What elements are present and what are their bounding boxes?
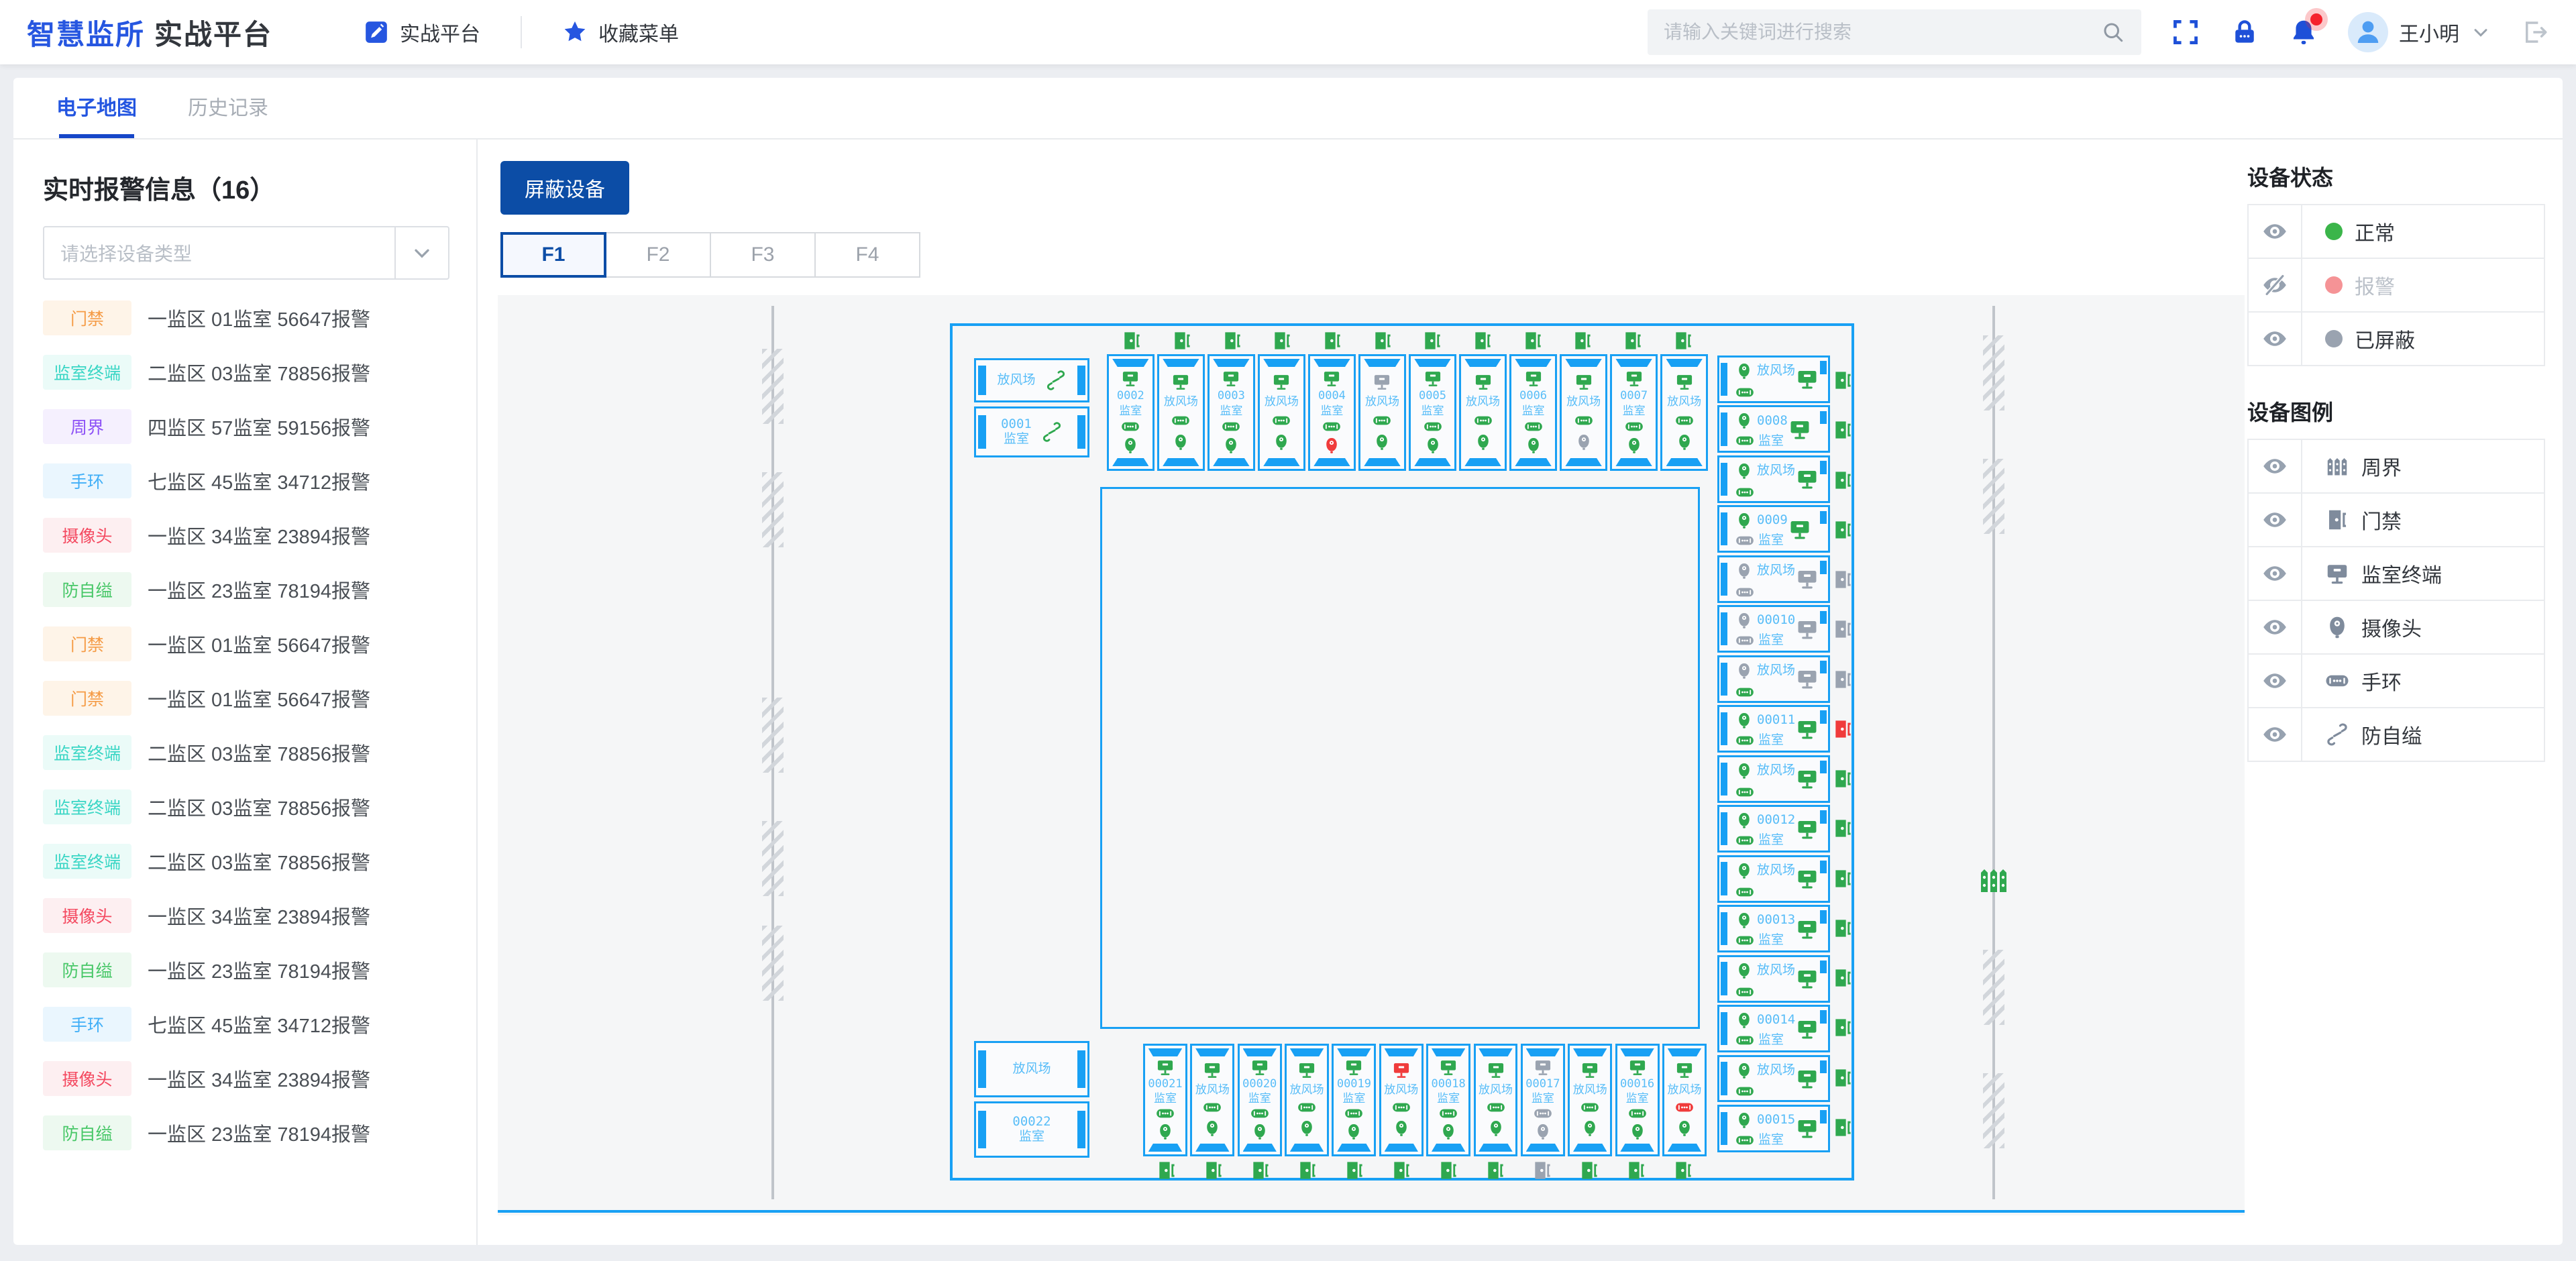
alarm-item[interactable]: 摄像头一监区 34监室 23894报警: [43, 508, 449, 562]
door-slot: [1237, 1159, 1284, 1182]
floor-tab-f4[interactable]: F4: [814, 232, 920, 278]
room-cell[interactable]: 00015监室: [1717, 1105, 1830, 1152]
band-icon[interactable]: [1735, 686, 1754, 698]
cell-row-top: 00010: [1735, 610, 1795, 631]
camera-icon[interactable]: [1735, 610, 1753, 631]
floor-tab-f2[interactable]: F2: [605, 232, 711, 278]
menu-item-favorites[interactable]: 收藏菜单: [562, 17, 679, 47]
monitor-icon[interactable]: [1788, 418, 1812, 441]
yard-cell[interactable]: 放风场: [974, 1041, 1089, 1097]
yard-cell[interactable]: 放风场: [1568, 1044, 1612, 1156]
cell-content: 0009监室: [1725, 510, 1788, 548]
room-cell[interactable]: 0004监室: [1308, 354, 1356, 471]
camera-icon[interactable]: [1474, 431, 1492, 453]
yard-cell[interactable]: 放风场: [1459, 354, 1507, 471]
door-icon[interactable]: [1832, 370, 1854, 391]
band-icon[interactable]: [1534, 1107, 1552, 1119]
rope-icon[interactable]: [1045, 370, 1067, 391]
floor-tab-f3[interactable]: F3: [710, 232, 816, 278]
yard-cell[interactable]: 放风场: [1717, 755, 1830, 803]
monitor-icon[interactable]: [1250, 1058, 1270, 1077]
door-slot: [1831, 854, 1854, 903]
door-icon[interactable]: [1485, 1160, 1506, 1181]
camera-icon[interactable]: [1676, 431, 1693, 453]
door-icon[interactable]: [1297, 1160, 1318, 1181]
monitor-icon[interactable]: [1795, 468, 1819, 490]
alarm-item[interactable]: 门禁一监区 01监室 56647报警: [43, 616, 449, 671]
door-icon[interactable]: [1832, 669, 1854, 690]
band-icon[interactable]: [1625, 421, 1644, 433]
alarm-sidebar: 实时报警信息（16） 请选择设备类型 门禁一监区 01监室 56647报警监室终…: [13, 140, 478, 1245]
alarm-item[interactable]: 防自缢一监区 23监室 78194报警: [43, 942, 449, 997]
cell-top-bar: [1573, 1048, 1607, 1056]
alarm-text: 一监区 23监室 78194报警: [148, 1119, 370, 1147]
room-cell[interactable]: 00010监室: [1717, 605, 1830, 653]
monitor-icon[interactable]: [1795, 818, 1819, 840]
camera-icon[interactable]: [1575, 431, 1593, 453]
logo-secondary: 实战平台: [154, 12, 272, 53]
yard-cell[interactable]: 放风场: [1662, 1044, 1707, 1156]
monitor-icon[interactable]: [1486, 1060, 1506, 1079]
band-icon[interactable]: [1574, 415, 1593, 427]
door-icon[interactable]: [1472, 330, 1493, 351]
door-icon[interactable]: [1156, 1160, 1177, 1181]
rope-icon[interactable]: [1041, 421, 1063, 443]
monitor-icon[interactable]: [1788, 518, 1812, 541]
band-icon[interactable]: [1487, 1101, 1505, 1113]
camera-icon[interactable]: [1487, 1117, 1505, 1139]
band-icon[interactable]: [1121, 421, 1140, 433]
device-type-select[interactable]: 请选择设备类型: [43, 226, 449, 280]
room-cell[interactable]: 00016监室: [1615, 1044, 1660, 1156]
cell-label: 00016: [1620, 1078, 1654, 1091]
tab-electronic-map[interactable]: 电子地图: [56, 91, 137, 138]
eye-toggle[interactable]: [2249, 205, 2302, 258]
monitor-icon[interactable]: [1322, 369, 1342, 388]
monitor-icon[interactable]: [1574, 372, 1594, 391]
cell-row-top: 00013: [1735, 910, 1795, 931]
door-icon[interactable]: [1832, 967, 1854, 989]
top-cell-row: 0002监室放风场0003监室放风场0004监室放风场0005监室放风场0006…: [1107, 354, 1708, 471]
status-main: 正常: [2302, 205, 2544, 258]
monitor-icon[interactable]: [1533, 1058, 1553, 1077]
door-icon[interactable]: [1121, 330, 1142, 351]
band-icon[interactable]: [1297, 1101, 1316, 1113]
door-icon[interactable]: [1832, 918, 1854, 939]
room-cell[interactable]: 00018监室: [1426, 1044, 1470, 1156]
door-icon[interactable]: [1625, 1160, 1647, 1181]
room-cell[interactable]: 00020监室: [1238, 1044, 1282, 1156]
band-icon[interactable]: [1344, 1107, 1363, 1119]
door-icon[interactable]: [1832, 1067, 1854, 1089]
room-cell[interactable]: 0001监室: [974, 406, 1089, 457]
camera-icon[interactable]: [1393, 1117, 1410, 1139]
room-cell[interactable]: 0005监室: [1409, 354, 1456, 471]
door-icon[interactable]: [1578, 1160, 1600, 1181]
camera-icon[interactable]: [1676, 1117, 1693, 1139]
alarm-item[interactable]: 监室终端二监区 03监室 78856报警: [43, 779, 449, 834]
door-icon[interactable]: [1622, 330, 1644, 351]
cell-top-bar: [1515, 359, 1551, 367]
camera-icon[interactable]: [1157, 1121, 1174, 1142]
camera-icon[interactable]: [1735, 960, 1753, 981]
door-icon[interactable]: [1322, 330, 1343, 351]
eye-toggle[interactable]: [2249, 440, 2302, 492]
room-cell[interactable]: 0007监室: [1610, 354, 1658, 471]
alarm-item[interactable]: 手环七监区 45监室 34712报警: [43, 997, 449, 1051]
eye-toggle[interactable]: [2249, 655, 2302, 707]
camera-icon[interactable]: [1298, 1117, 1316, 1139]
cell-bottom-bar: [1213, 458, 1249, 466]
band-icon[interactable]: [1735, 586, 1754, 598]
user-menu[interactable]: 王小明: [2348, 12, 2491, 52]
monitor-icon[interactable]: [1221, 369, 1241, 388]
monitor-icon[interactable]: [1523, 369, 1544, 388]
edit-icon: [364, 19, 389, 45]
camera-icon[interactable]: [1735, 560, 1753, 582]
alarm-item[interactable]: 门禁一监区 01监室 56647报警: [43, 290, 449, 345]
alarm-item[interactable]: 监室终端二监区 03监室 78856报警: [43, 725, 449, 779]
band-icon[interactable]: [1222, 421, 1240, 433]
door-icon[interactable]: [1832, 868, 1854, 889]
star-icon: [562, 19, 588, 45]
door-icon[interactable]: [1832, 718, 1854, 740]
menu-item-platform[interactable]: 实战平台: [364, 17, 480, 47]
cell-content: 00013监室: [1725, 910, 1795, 948]
floor-tab-f1[interactable]: F1: [500, 232, 606, 278]
room-cell[interactable]: 00014监室: [1717, 1005, 1830, 1052]
alarm-item[interactable]: 监室终端二监区 03监室 78856报警: [43, 345, 449, 399]
monitor-icon[interactable]: [1674, 1060, 1695, 1079]
band-icon[interactable]: [1735, 486, 1754, 498]
camera-icon[interactable]: [1735, 1109, 1753, 1131]
door-icon[interactable]: [1672, 1160, 1694, 1181]
device-status-box: 正常报警已屏蔽: [2247, 204, 2545, 366]
monitor-icon[interactable]: [1795, 867, 1819, 890]
camera-icon[interactable]: [1735, 460, 1753, 482]
monitor-icon[interactable]: [1795, 767, 1819, 790]
lock-icon[interactable]: [2230, 17, 2259, 47]
band-icon[interactable]: [1735, 1134, 1754, 1146]
door-icon[interactable]: [1832, 470, 1854, 491]
yard-cell[interactable]: 放风场: [1717, 955, 1830, 1003]
monitor-icon[interactable]: [1423, 369, 1443, 388]
status-main: 报警: [2302, 259, 2544, 311]
cell-bottom-bar: [1195, 1144, 1229, 1152]
door-icon[interactable]: [1391, 1160, 1412, 1181]
camera-icon[interactable]: [1525, 435, 1542, 456]
door-icon[interactable]: [1344, 1160, 1365, 1181]
camera-icon[interactable]: [1172, 431, 1189, 453]
room-cell[interactable]: 0008监室: [1717, 405, 1830, 453]
room-cell[interactable]: 00022监室: [974, 1101, 1089, 1158]
yard-cell[interactable]: 放风场: [1717, 655, 1830, 703]
door-slot: [1831, 405, 1854, 455]
eye-toggle[interactable]: [2249, 494, 2302, 546]
cell-label: 监室: [1758, 733, 1784, 748]
yard-cell[interactable]: 放风场: [1560, 354, 1607, 471]
door-icon[interactable]: [1532, 1160, 1553, 1181]
yard-cell[interactable]: 放风场: [1190, 1044, 1234, 1156]
alarm-item[interactable]: 监室终端二监区 03监室 78856报警: [43, 834, 449, 888]
bell-button[interactable]: [2289, 17, 2318, 47]
band-icon[interactable]: [1735, 734, 1754, 747]
band-icon[interactable]: [1735, 986, 1754, 998]
tab-history[interactable]: 历史记录: [188, 91, 268, 138]
alarm-type-tag: 监室终端: [43, 789, 131, 824]
monitor-icon[interactable]: [1795, 667, 1819, 690]
cell-row-bottom: 监室: [1735, 633, 1795, 648]
cell-row-bottom: [1735, 586, 1795, 598]
band-icon[interactable]: [1373, 415, 1391, 427]
door-icon[interactable]: [1672, 330, 1694, 351]
band-icon[interactable]: [1735, 635, 1754, 647]
yard-cell[interactable]: 放风场: [1379, 1044, 1424, 1156]
door-icon[interactable]: [1832, 1017, 1854, 1038]
camera-icon[interactable]: [1440, 1121, 1457, 1142]
cell-content: 00014监室: [1725, 1009, 1795, 1048]
room-cell[interactable]: 00012监室: [1717, 805, 1830, 853]
monitor-icon[interactable]: [1674, 372, 1695, 391]
camera-icon[interactable]: [1273, 431, 1290, 453]
door-icon[interactable]: [1832, 569, 1854, 590]
cell-row-bottom: [1735, 386, 1795, 398]
camera-icon[interactable]: [1251, 1121, 1269, 1142]
band-icon[interactable]: [1392, 1101, 1411, 1113]
camera-icon[interactable]: [1122, 435, 1139, 456]
door-slot: [1660, 1159, 1707, 1182]
room-cell[interactable]: 0009监室: [1717, 505, 1830, 553]
room-cell[interactable]: 00019监室: [1332, 1044, 1376, 1156]
alarm-text: 七监区 45监室 34712报警: [148, 1010, 370, 1038]
door-icon[interactable]: [1203, 1160, 1224, 1181]
cell-bottom-bar: [1479, 1144, 1512, 1152]
cell-label: 放风场: [1667, 396, 1701, 409]
monitor-icon[interactable]: [1391, 1060, 1411, 1079]
floor-map-canvas[interactable]: 0002监室放风场0003监室放风场0004监室放风场0005监室放风场0006…: [498, 295, 2245, 1215]
door-icon[interactable]: [1832, 768, 1854, 789]
camera-icon[interactable]: [1323, 435, 1340, 456]
monitor-icon[interactable]: [1627, 1058, 1648, 1077]
band-icon[interactable]: [1524, 421, 1543, 433]
band-icon[interactable]: [1735, 1085, 1754, 1097]
camera-icon[interactable]: [1203, 1117, 1221, 1139]
band-icon[interactable]: [1735, 435, 1754, 447]
band-icon[interactable]: [1735, 786, 1754, 798]
door-slot: [1831, 604, 1854, 654]
monitor-icon[interactable]: [1795, 567, 1819, 590]
band-icon[interactable]: [1580, 1101, 1599, 1113]
alarm-item[interactable]: 手环七监区 45监室 34712报警: [43, 453, 449, 508]
room-cell[interactable]: 00011监室: [1717, 705, 1830, 753]
camera-icon[interactable]: [1345, 1121, 1362, 1142]
alarm-item[interactable]: 防自缢一监区 23监室 78194报警: [43, 1105, 449, 1160]
camera-icon[interactable]: [1735, 1009, 1753, 1031]
cell-label: 放风场: [1667, 1084, 1701, 1097]
door-icon[interactable]: [1832, 419, 1854, 441]
band-icon[interactable]: [1156, 1107, 1175, 1119]
monitor-icon[interactable]: [1202, 1060, 1222, 1079]
band-icon[interactable]: [1735, 535, 1754, 547]
band-icon[interactable]: [1735, 834, 1754, 846]
yard-cell[interactable]: 放风场: [1717, 1055, 1830, 1103]
monitor-icon[interactable]: [1624, 369, 1644, 388]
fence-icon[interactable]: [1978, 864, 2010, 896]
room-cell[interactable]: 00013监室: [1717, 905, 1830, 952]
yard-cell[interactable]: 放风场: [1660, 354, 1708, 471]
shield-device-button[interactable]: 屏蔽设备: [500, 161, 629, 215]
band-icon[interactable]: [1675, 1101, 1694, 1113]
monitor-icon[interactable]: [1580, 1060, 1600, 1079]
camera-icon[interactable]: [1735, 910, 1753, 931]
camera-icon[interactable]: [1735, 510, 1753, 531]
search-icon[interactable]: [2101, 20, 2125, 44]
search-input[interactable]: [1664, 21, 2101, 43]
room-cell[interactable]: 00021监室: [1143, 1044, 1187, 1156]
monitor-icon[interactable]: [1795, 718, 1819, 741]
band-icon[interactable]: [1424, 421, 1442, 433]
monitor-icon[interactable]: [1795, 1018, 1819, 1040]
monitor-icon[interactable]: [1795, 918, 1819, 940]
camera-icon[interactable]: [1534, 1121, 1552, 1142]
band-icon[interactable]: [1272, 415, 1291, 427]
camera-icon[interactable]: [1735, 360, 1753, 382]
camera-icon[interactable]: [1625, 435, 1643, 456]
alarm-type-tag: 门禁: [43, 626, 131, 661]
band-icon[interactable]: [1322, 421, 1341, 433]
monitor-icon[interactable]: [1155, 1058, 1175, 1077]
band-icon[interactable]: [1735, 886, 1754, 898]
eye-toggle[interactable]: [2249, 708, 2302, 761]
cell-label: 00014: [1757, 1013, 1795, 1028]
monitor-icon[interactable]: [1372, 372, 1392, 391]
door-slot: [1284, 1159, 1331, 1182]
top-menu: 实战平台 收藏菜单: [364, 16, 679, 48]
band-icon[interactable]: [1735, 386, 1754, 398]
camera-icon[interactable]: [1735, 760, 1753, 781]
band-icon[interactable]: [1735, 1034, 1754, 1046]
cell-label: 放风场: [1365, 396, 1399, 409]
yard-cell[interactable]: 放风场: [1474, 1044, 1518, 1156]
monitor-icon[interactable]: [1171, 372, 1191, 391]
yard-cell[interactable]: 放风场: [1717, 855, 1830, 903]
door-icon[interactable]: [1832, 818, 1854, 839]
eye-toggle[interactable]: [2249, 547, 2302, 600]
door-icon[interactable]: [1372, 330, 1393, 351]
room-cell[interactable]: 0002监室: [1107, 354, 1155, 471]
monitor-icon[interactable]: [1271, 372, 1291, 391]
monitor-icon[interactable]: [1795, 967, 1819, 990]
camera-icon[interactable]: [1735, 660, 1753, 681]
yard-cell[interactable]: 放风场: [1285, 1044, 1329, 1156]
status-row: 正常: [2249, 205, 2544, 259]
monitor-icon[interactable]: [1120, 369, 1140, 388]
band-icon[interactable]: [1474, 415, 1493, 427]
monitor-icon[interactable]: [1297, 1060, 1317, 1079]
yard-cell[interactable]: 放风场: [1717, 555, 1830, 603]
monitor-icon[interactable]: [1344, 1058, 1364, 1077]
room-cell[interactable]: 0003监室: [1207, 354, 1255, 471]
room-cell[interactable]: 0006监室: [1509, 354, 1557, 471]
alarm-item[interactable]: 摄像头一监区 34监室 23894报警: [43, 1051, 449, 1105]
door-icon[interactable]: [1250, 1160, 1271, 1181]
yard-cell[interactable]: 放风场: [1717, 455, 1830, 503]
yard-cell[interactable]: 放风场: [1358, 354, 1406, 471]
band-icon[interactable]: [1675, 415, 1694, 427]
cell-bottom-bar: [1668, 1144, 1701, 1152]
eye-toggle[interactable]: [2249, 601, 2302, 653]
yard-cell[interactable]: 放风场: [1157, 354, 1205, 471]
cell-bottom-bar: [1620, 1144, 1654, 1152]
door-icon[interactable]: [1271, 330, 1293, 351]
yard-cell[interactable]: 放风场: [1258, 354, 1305, 471]
door-icon[interactable]: [1171, 330, 1193, 351]
alarm-item[interactable]: 防自缢一监区 23监室 78194报警: [43, 562, 449, 616]
camera-icon[interactable]: [1735, 810, 1753, 831]
alarm-item[interactable]: 摄像头一监区 34监室 23894报警: [43, 888, 449, 942]
door-slot: [1831, 355, 1854, 405]
band-icon[interactable]: [1628, 1107, 1647, 1119]
camera-icon[interactable]: [1373, 431, 1391, 453]
alarm-item[interactable]: 门禁一监区 01监室 56647报警: [43, 671, 449, 725]
door-icon[interactable]: [1832, 519, 1854, 541]
band-icon[interactable]: [1203, 1101, 1222, 1113]
camera-icon[interactable]: [1424, 435, 1442, 456]
monitor-icon[interactable]: [1795, 1117, 1819, 1140]
fullscreen-icon[interactable]: [2171, 17, 2200, 47]
yard-cell[interactable]: 放风场: [1717, 355, 1830, 403]
monitor-icon[interactable]: [1473, 372, 1493, 391]
alarm-item[interactable]: 周界四监区 57监室 59156报警: [43, 399, 449, 453]
camera-icon[interactable]: [1581, 1117, 1599, 1139]
monitor-icon[interactable]: [1795, 1067, 1819, 1090]
cell-content: 00015监室: [1725, 1109, 1795, 1148]
camera-icon[interactable]: [1735, 860, 1753, 881]
monitor-icon[interactable]: [1795, 618, 1819, 641]
camera-icon[interactable]: [1735, 710, 1753, 731]
camera-icon[interactable]: [1735, 1060, 1753, 1081]
door-slot: [1407, 329, 1458, 353]
door-icon[interactable]: [1832, 1117, 1854, 1138]
door-icon[interactable]: [1832, 618, 1854, 640]
cell-label: 0007: [1620, 390, 1648, 403]
alarm-type-tag: 防自缢: [43, 952, 131, 987]
door-icon[interactable]: [1572, 330, 1593, 351]
eye-toggle[interactable]: [2249, 259, 2302, 311]
camera-icon[interactable]: [1735, 410, 1753, 431]
monitor-icon[interactable]: [1795, 368, 1819, 390]
monitor-icon[interactable]: [1438, 1058, 1458, 1077]
cell-label: 0001: [1001, 417, 1032, 432]
camera-icon[interactable]: [1222, 435, 1240, 456]
band-icon[interactable]: [1439, 1107, 1458, 1119]
cell-bottom-bar: [1364, 458, 1400, 466]
alarm-text: 二监区 03监室 78856报警: [148, 793, 370, 821]
band-icon[interactable]: [1735, 934, 1754, 946]
band-icon[interactable]: [1250, 1107, 1269, 1119]
door-icon[interactable]: [1522, 330, 1544, 351]
door-icon[interactable]: [1222, 330, 1243, 351]
yard-cell[interactable]: 放风场: [974, 358, 1089, 402]
cell-row-bottom: 监室: [1735, 933, 1795, 948]
door-icon[interactable]: [1438, 1160, 1459, 1181]
camera-icon[interactable]: [1629, 1121, 1646, 1142]
eye-toggle[interactable]: [2249, 313, 2302, 365]
door-icon[interactable]: [1421, 330, 1443, 351]
room-cell[interactable]: 00017监室: [1521, 1044, 1565, 1156]
logout-icon[interactable]: [2521, 18, 2549, 46]
band-icon[interactable]: [1171, 415, 1190, 427]
